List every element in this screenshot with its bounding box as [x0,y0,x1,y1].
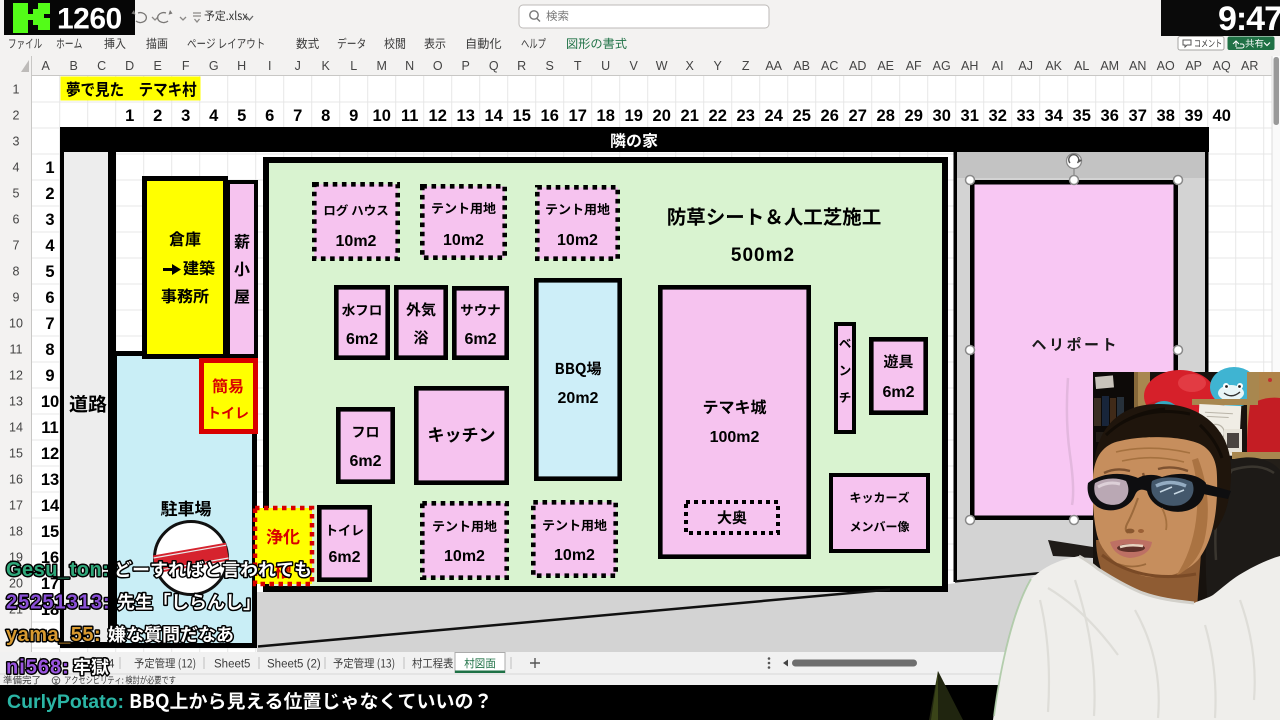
svg-text:10m2: 10m2 [443,232,484,249]
svg-text:1: 1 [45,159,54,177]
svg-text:15: 15 [41,523,59,541]
svg-text:500m2: 500m2 [731,245,795,266]
svg-text:9: 9 [13,291,20,305]
svg-text:AP: AP [1185,59,1202,73]
svg-text:38: 38 [1157,107,1175,125]
svg-text:10m2: 10m2 [554,547,595,564]
svg-text:10m2: 10m2 [557,232,598,249]
svg-text:13: 13 [457,107,475,125]
svg-text:30: 30 [933,107,951,125]
svg-text:CurlyPotato:: CurlyPotato: [7,691,124,713]
svg-text:Sheet5 (2): Sheet5 (2) [267,659,321,671]
svg-text:20m2: 20m2 [558,390,599,407]
svg-text:AA: AA [765,59,782,73]
svg-text:A: A [42,59,51,73]
svg-text:11: 11 [41,419,58,437]
svg-text:6m2: 6m2 [882,384,914,401]
svg-text:J: J [295,59,301,73]
svg-text:W: W [656,59,668,73]
svg-text:Y: Y [714,59,723,73]
svg-text:AM: AM [1100,59,1119,73]
svg-text:AE: AE [877,59,894,73]
svg-text:28: 28 [877,107,895,125]
svg-text:X: X [686,59,695,73]
svg-text:21: 21 [681,107,699,125]
svg-text:27: 27 [849,107,867,125]
svg-text:C: C [97,59,106,73]
svg-text:12: 12 [41,445,59,463]
svg-text:19: 19 [625,107,643,125]
svg-text:AR: AR [1241,59,1258,73]
svg-text:17: 17 [9,499,23,513]
svg-text:4: 4 [13,161,20,175]
svg-text:31: 31 [961,107,979,125]
svg-text:29: 29 [905,107,923,125]
svg-text:13: 13 [41,471,59,489]
svg-text:35: 35 [1073,107,1091,125]
svg-text:E: E [154,59,162,73]
svg-text:20: 20 [653,107,671,125]
svg-text:T: T [574,59,582,73]
svg-text:AC: AC [821,59,838,73]
svg-text:14: 14 [9,421,23,435]
svg-text:37: 37 [1129,107,1147,125]
svg-text:2: 2 [13,109,20,123]
svg-text:Gesu_ton:: Gesu_ton: [6,559,109,581]
svg-text:6: 6 [265,107,274,125]
svg-text:AF: AF [906,59,922,73]
svg-text:Sheet5: Sheet5 [214,659,250,671]
svg-text:AK: AK [1045,59,1062,73]
svg-text:6m2: 6m2 [464,331,496,348]
svg-text:G: G [209,59,219,73]
svg-text:33: 33 [1017,107,1035,125]
svg-text:4: 4 [45,237,55,255]
svg-text:ni568:: ni568: [6,657,70,679]
svg-text:7: 7 [45,315,54,333]
svg-text:M: M [376,59,386,73]
svg-text:18: 18 [597,107,615,125]
svg-text:9:47: 9:47 [1218,0,1280,38]
svg-text:18: 18 [9,525,23,539]
svg-text:6: 6 [45,289,54,307]
svg-text:1: 1 [13,83,20,97]
svg-text:AQ: AQ [1213,59,1231,73]
svg-text:AD: AD [849,59,866,73]
svg-text:4: 4 [209,107,219,125]
svg-text:AL: AL [1074,59,1089,73]
svg-text:24: 24 [765,107,784,125]
svg-text:26: 26 [821,107,839,125]
svg-text:8: 8 [45,341,54,359]
svg-text:5: 5 [237,107,246,125]
svg-text:23: 23 [737,107,755,125]
svg-text:AO: AO [1157,59,1175,73]
svg-text:32: 32 [989,107,1007,125]
svg-text:H: H [237,59,246,73]
svg-text:6m2: 6m2 [349,453,381,470]
svg-text:14: 14 [41,497,60,515]
svg-text:25: 25 [793,107,811,125]
svg-text:1260: 1260 [57,3,122,36]
svg-text:U: U [601,59,610,73]
svg-text:6: 6 [13,213,20,227]
svg-text:3: 3 [45,211,54,229]
svg-text:9: 9 [349,107,358,125]
svg-text:36: 36 [1101,107,1119,125]
svg-text:12: 12 [9,369,23,383]
svg-text:V: V [630,59,639,73]
svg-text:13: 13 [9,395,23,409]
svg-text:39: 39 [1185,107,1203,125]
svg-text:16: 16 [9,473,23,487]
svg-text:10m2: 10m2 [336,233,377,250]
svg-text:B: B [70,59,78,73]
svg-text:17: 17 [569,107,587,125]
svg-text:2: 2 [153,107,162,125]
svg-text:D: D [125,59,134,73]
svg-text:AJ: AJ [1018,59,1033,73]
svg-text:15: 15 [513,107,531,125]
svg-text:R: R [517,59,526,73]
svg-text:3: 3 [13,135,20,149]
svg-text:15: 15 [9,447,23,461]
svg-text:5: 5 [13,187,20,201]
svg-text:10: 10 [41,393,59,411]
svg-text:AH: AH [961,59,978,73]
svg-text:F: F [182,59,190,73]
svg-text:S: S [546,59,554,73]
svg-text:34: 34 [1045,107,1064,125]
svg-text:10: 10 [9,317,23,331]
svg-text:2: 2 [45,185,54,203]
svg-text:I: I [268,59,271,73]
svg-text:3: 3 [181,107,190,125]
svg-text:Z: Z [742,59,750,73]
svg-text:7: 7 [293,107,302,125]
svg-text:P: P [462,59,470,73]
svg-text:100m2: 100m2 [710,429,760,446]
svg-text:14: 14 [485,107,504,125]
svg-text:9: 9 [45,367,54,385]
svg-text:AB: AB [793,59,810,73]
svg-text:12: 12 [429,107,447,125]
svg-text:yama_55:: yama_55: [6,624,101,646]
svg-text:K: K [322,59,331,73]
svg-text:AN: AN [1129,59,1146,73]
svg-text:11: 11 [401,107,418,125]
svg-text:6m2: 6m2 [346,331,378,348]
svg-text:16: 16 [541,107,559,125]
svg-text:1: 1 [125,107,134,125]
svg-text:Q: Q [489,59,499,73]
svg-text:6m2: 6m2 [328,549,360,566]
svg-text:22: 22 [709,107,727,125]
svg-text:N: N [405,59,414,73]
svg-text:25251313:: 25251313: [6,592,111,614]
svg-text:5: 5 [45,263,54,281]
svg-text:L: L [350,59,357,73]
svg-text:7: 7 [13,239,20,253]
svg-text:11: 11 [10,343,23,357]
svg-text:40: 40 [1213,107,1231,125]
svg-text:10: 10 [373,107,391,125]
svg-text:8: 8 [13,265,20,279]
svg-text:8: 8 [321,107,330,125]
svg-text:AG: AG [933,59,951,73]
svg-text:10m2: 10m2 [444,548,485,565]
svg-text:O: O [433,59,443,73]
svg-text:AI: AI [992,59,1004,73]
